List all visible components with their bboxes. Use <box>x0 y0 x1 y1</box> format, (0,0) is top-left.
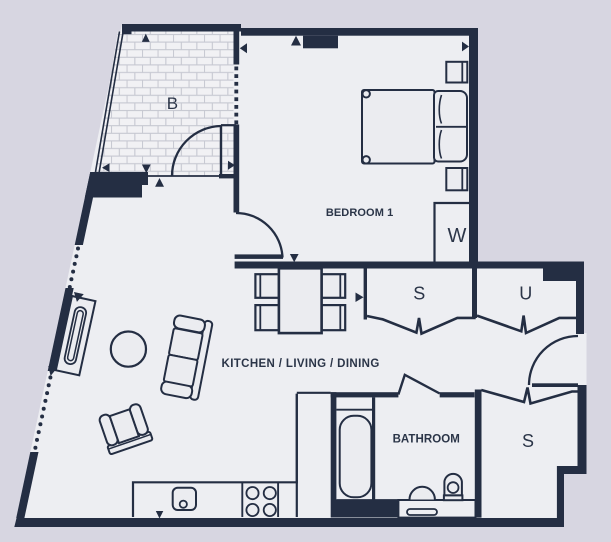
svg-text:S: S <box>413 284 425 304</box>
svg-text:KITCHEN / LIVING / DINING: KITCHEN / LIVING / DINING <box>222 358 380 370</box>
svg-text:U: U <box>519 284 532 304</box>
svg-text:S: S <box>522 431 534 451</box>
svg-text:BATHROOM: BATHROOM <box>393 434 460 446</box>
svg-text:B: B <box>167 94 178 113</box>
svg-text:BEDROOM 1: BEDROOM 1 <box>326 207 394 219</box>
svg-text:W: W <box>448 225 467 247</box>
